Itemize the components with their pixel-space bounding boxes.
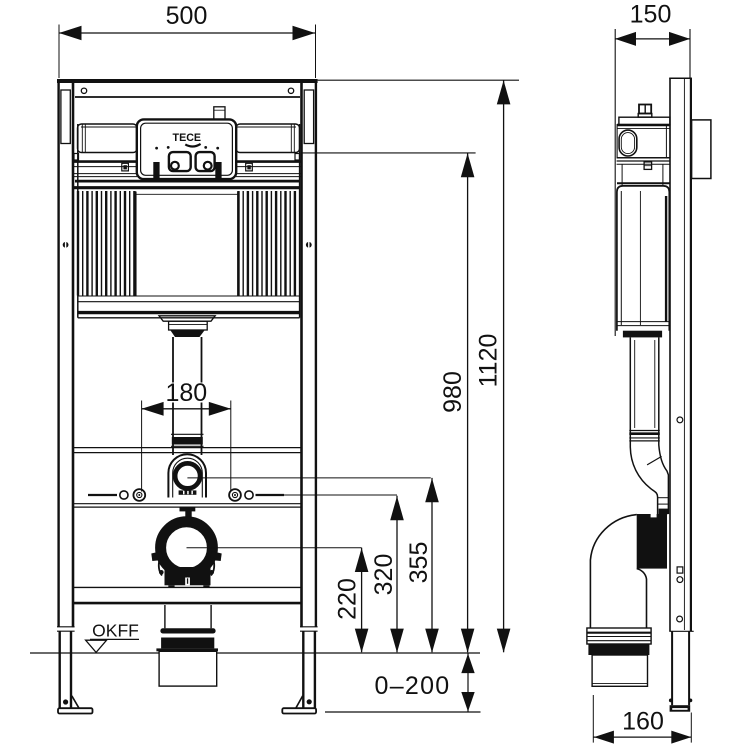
svg-text:150: 150 (630, 1, 672, 29)
svg-text:TECE: TECE (173, 132, 202, 144)
svg-text:220: 220 (334, 578, 362, 620)
svg-text:1120: 1120 (475, 334, 503, 388)
svg-text:180: 180 (165, 379, 207, 407)
svg-text:980: 980 (439, 371, 467, 413)
svg-text:320: 320 (370, 554, 398, 596)
svg-text:355: 355 (405, 542, 433, 584)
svg-text:500: 500 (166, 2, 208, 30)
svg-text:160: 160 (622, 708, 664, 736)
svg-text:0–200: 0–200 (374, 672, 450, 700)
svg-text:OKFF: OKFF (92, 621, 139, 641)
